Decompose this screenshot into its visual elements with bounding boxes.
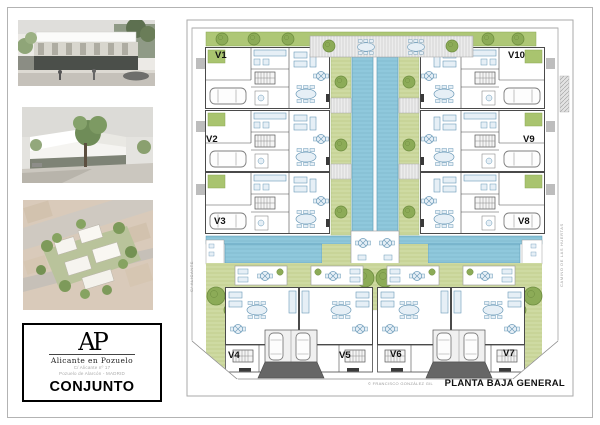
plan-title: PLANTA BAJA GENERAL: [430, 378, 565, 389]
garage-ramp-right: [426, 362, 492, 378]
pool-vertical-right: [377, 57, 398, 232]
site-plan: [0, 0, 600, 425]
unit-label-v3: V3: [214, 216, 226, 227]
pool-horizontal-left: [225, 244, 322, 263]
street-label-right: CAMINO DE LAS HUERTAS: [559, 223, 564, 287]
drawing-sheet: AP Alicante en Pozuelo C/ Alicante nº 17…: [0, 0, 600, 425]
unit-label-v5: V5: [339, 350, 351, 361]
unit-label-v8: V8: [518, 216, 530, 227]
entry-pergola-deck: [310, 36, 473, 57]
unit-label-v7: V7: [503, 348, 515, 359]
unit-label-v9: V9: [523, 134, 535, 145]
unit-label-v2: V2: [206, 134, 218, 145]
unit-label-v1: V1: [215, 50, 227, 61]
unit-label-v4: V4: [228, 350, 240, 361]
unit-label-v10: V10: [508, 50, 525, 61]
central-pool-band: [206, 231, 542, 267]
garage-ramp-left: [258, 362, 324, 378]
unit-label-v6: V6: [390, 349, 402, 360]
plan-credit: © FRANCISCO GONZÁLEZ GIL: [368, 381, 433, 386]
street-label-left: C/ ALICANTE: [189, 261, 194, 292]
pool-vertical-left: [352, 57, 373, 232]
pool-horizontal-right: [428, 244, 520, 263]
central-terrace: [351, 231, 399, 267]
